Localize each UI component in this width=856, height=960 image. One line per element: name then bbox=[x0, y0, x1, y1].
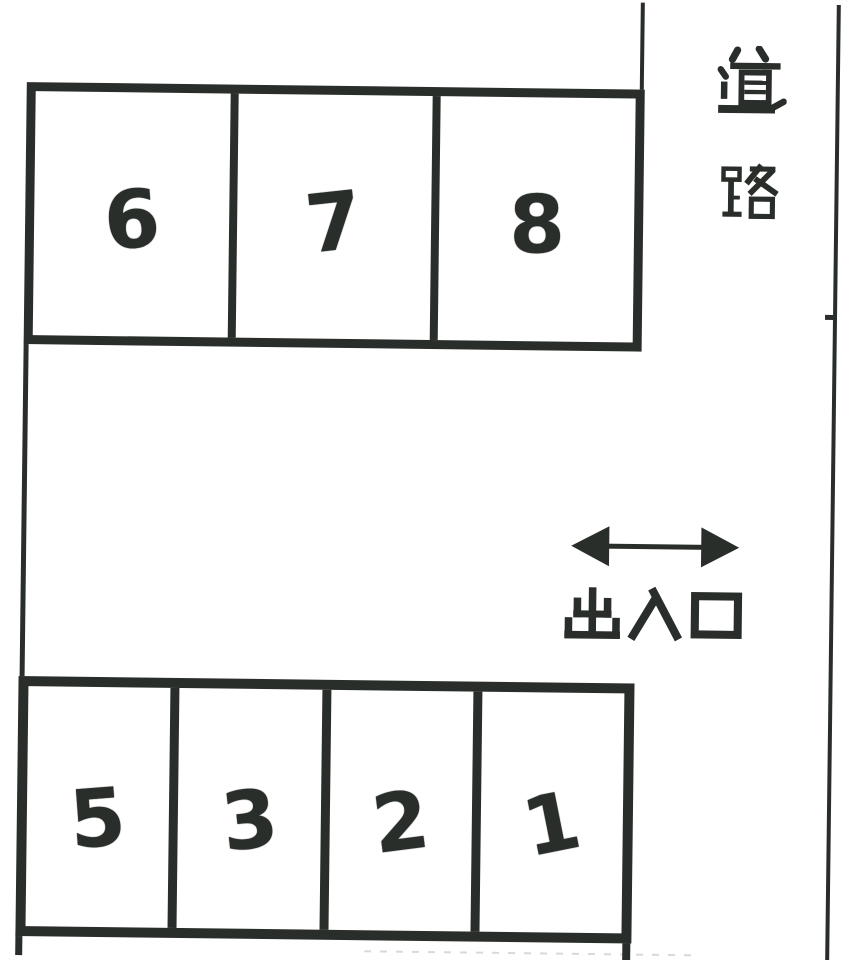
space-number: 2 bbox=[368, 779, 433, 865]
parking-space-3: 3 bbox=[177, 688, 322, 930]
parking-space-7: 7 bbox=[235, 94, 433, 340]
space-number: 6 bbox=[101, 178, 163, 262]
kanji-iri-enter-icon bbox=[625, 585, 684, 644]
parking-diagram: 6 7 8 5 3 2 1 bbox=[0, 0, 856, 960]
parking-space-5: 5 bbox=[26, 686, 171, 928]
space-number: 8 bbox=[508, 185, 565, 266]
parking-row-bottom: 5 3 2 1 bbox=[15, 676, 634, 944]
entrance-exit-marker: 出入口 bbox=[559, 522, 750, 645]
kanji-ro-road-icon bbox=[717, 162, 782, 227]
lot-left-boundary-line bbox=[20, 339, 29, 681]
space-number: 7 bbox=[302, 180, 366, 266]
parking-space-8: 8 bbox=[438, 96, 636, 342]
parking-space-2: 2 bbox=[328, 690, 473, 932]
space-number: 3 bbox=[217, 778, 281, 864]
kanji-dou-road-icon bbox=[714, 45, 787, 118]
space-number: 5 bbox=[67, 777, 129, 861]
scan-noise bbox=[364, 950, 694, 956]
kanji-guchi-mouth-icon bbox=[687, 586, 746, 645]
road-far-boundary-line bbox=[825, 5, 841, 960]
entrance-exit-label: 出入口 bbox=[563, 585, 746, 645]
road-label: 道路 bbox=[713, 45, 787, 226]
parking-space-1: 1 bbox=[479, 692, 624, 934]
parking-space-6: 6 bbox=[33, 91, 231, 337]
kanji-de-exit-icon bbox=[563, 585, 622, 644]
scan-tick bbox=[825, 315, 834, 320]
space-number: 1 bbox=[517, 780, 587, 869]
parking-row-top: 6 7 8 bbox=[24, 82, 645, 352]
double-arrow-icon bbox=[569, 522, 742, 572]
road-near-boundary-line-upper bbox=[640, 3, 645, 96]
